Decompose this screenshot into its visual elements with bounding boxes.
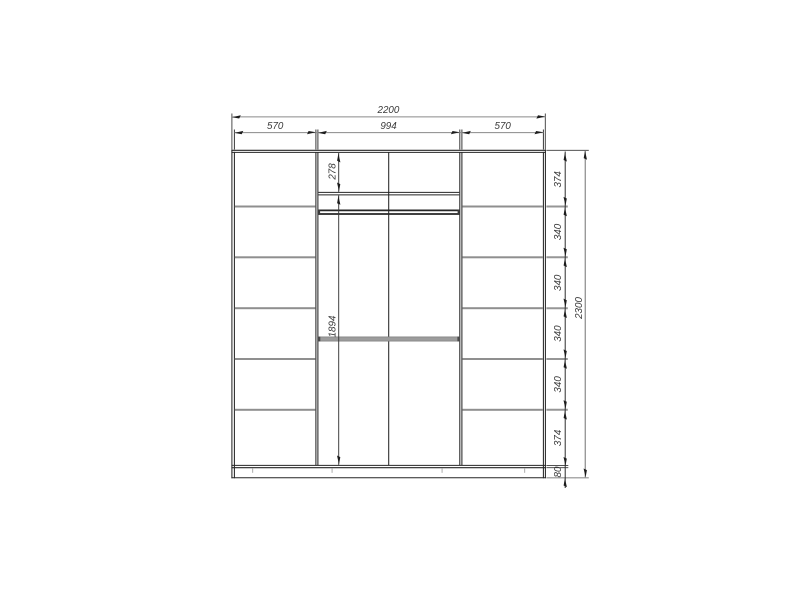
svg-text:340: 340 [553,376,564,393]
svg-text:374: 374 [553,429,564,446]
svg-text:2200: 2200 [377,105,400,116]
svg-text:80: 80 [553,466,564,477]
svg-text:340: 340 [553,325,564,342]
svg-text:570: 570 [495,121,512,132]
svg-text:1894: 1894 [328,315,339,337]
svg-text:340: 340 [553,274,564,291]
svg-text:570: 570 [267,121,284,132]
svg-text:278: 278 [327,163,338,181]
svg-text:374: 374 [553,171,564,188]
svg-text:2300: 2300 [574,297,585,320]
svg-text:340: 340 [553,223,564,240]
svg-text:994: 994 [380,121,397,132]
